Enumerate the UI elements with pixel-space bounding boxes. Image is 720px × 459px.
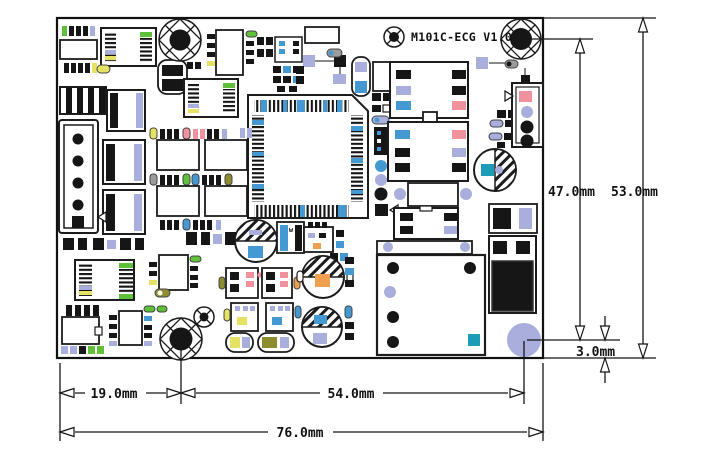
board-title: M101C-ECG V1.0 (411, 30, 512, 44)
shield-module (377, 255, 485, 355)
pcb-dimension-drawing: w (0, 0, 720, 459)
header-connector-6pin (59, 120, 106, 233)
component-w-marked: w (277, 222, 304, 253)
dim-53mm: 53.0mm (611, 185, 658, 200)
dim-3mm: 3.0mm (576, 345, 615, 360)
ic-soic (216, 30, 243, 75)
electrolytic-cap-4 (474, 149, 516, 191)
fiducial-mark (384, 27, 404, 47)
striped-block (60, 87, 106, 114)
dim-19mm: 19.0mm (91, 387, 138, 402)
dim-76mm: 76.0mm (277, 426, 324, 441)
electrolytic-cap-3 (302, 307, 342, 347)
mounting-hole-top-left (159, 19, 201, 61)
qfp-chip (248, 95, 368, 218)
electrolytic-cap-2 (302, 256, 344, 298)
electrolytic-cap-1 (235, 220, 277, 262)
via-hole-small (194, 307, 214, 327)
power-connector (489, 236, 536, 313)
dim-54mm: 54.0mm (328, 387, 375, 402)
relay-3 (394, 208, 458, 239)
dim-47mm: 47.0mm (548, 185, 595, 200)
left-edge-components (59, 87, 145, 234)
